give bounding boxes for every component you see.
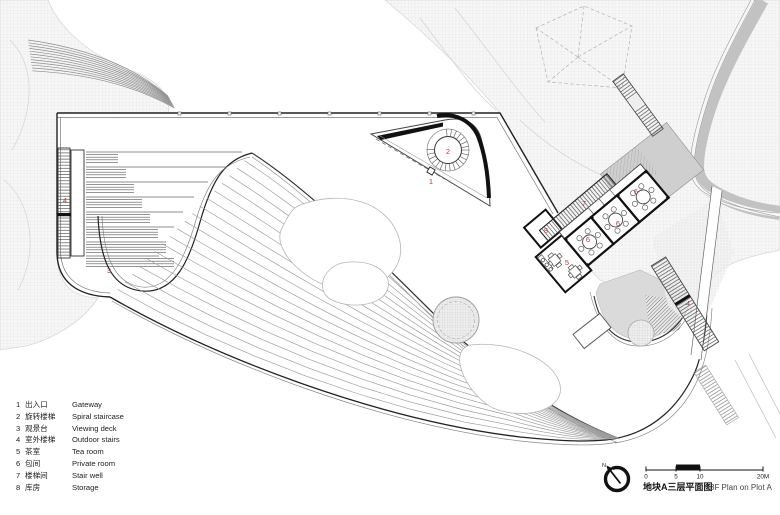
legend-item-number: 6 [16,458,25,470]
legend-item-zh: 库房 [25,482,72,494]
legend-item: 6包间Private room [16,458,124,470]
legend-item: 3观景台Viewing deck [16,423,124,435]
legend-item: 5茶室Tea room [16,446,124,458]
plan-label: 6 [616,219,620,228]
scale-tick: 20M [757,474,769,481]
legend-item-zh: 楼梯间 [25,470,72,482]
legend-item-zh: 旋转楼梯 [25,411,72,423]
scale-tick-labels: 051020M [644,474,769,481]
legend-item-number: 2 [16,411,25,423]
titleblock: N 051020M 地块A三层平面图 3F Plan on Plot A [602,463,772,492]
legend-item-en: Private room [72,458,115,470]
plan-label: 6 [586,235,590,244]
legend-item-zh: 出入口 [25,399,72,411]
legend-item-number: 8 [16,482,25,494]
legend-item: 2旋转楼梯Spiral staircase [16,411,124,423]
legend-item-en: Gateway [72,399,102,411]
legend-item-zh: 茶室 [25,446,72,458]
plan-label: 4 [63,196,67,205]
scale-tick: 0 [644,474,648,481]
plan-label: 4 [686,299,690,308]
floor-plan-sheet: 43127866654 N 051020M 地块A三层平面图 3F Plan o… [0,0,780,515]
plan-label: 8 [544,226,548,235]
scale-tick: 10 [696,474,704,481]
legend-item: 1出入口Gateway [16,399,124,411]
plan-label: 6 [634,187,638,196]
sheet-title-zh: 地块A三层平面图 [643,481,713,492]
legend-item-zh: 包间 [25,458,72,470]
tree-small [628,320,654,346]
tree [433,297,479,343]
scale-tick: 5 [674,474,678,481]
legend-item-number: 5 [16,446,25,458]
legend-item-number: 7 [16,470,25,482]
legend-item-en: Tea room [72,446,104,458]
legend-item-number: 4 [16,434,25,446]
legend-item-en: Viewing deck [72,423,117,435]
legend-item-number: 3 [16,423,25,435]
legend-item: 8库房Storage [16,482,124,494]
plan-label: 2 [446,147,450,156]
plan-label: 5 [565,258,569,267]
legend-item-en: Spiral staircase [72,411,124,423]
plan-label: 7 [582,199,586,208]
legend-item-en: Storage [72,482,99,494]
plan-label: 1 [429,177,433,186]
outdoor-stair-right-lower [694,365,739,425]
legend-item: 4室外楼梯Outdoor stairs [16,434,124,446]
north-label: N [602,463,606,469]
legend-item-zh: 室外楼梯 [25,434,72,446]
north-arrow-icon: N [602,463,629,491]
legend: 1出入口Gateway2旋转楼梯Spiral staircase3观景台View… [16,399,124,493]
sheet-title-en: 3F Plan on Plot A [710,483,772,492]
legend-item-en: Stair well [72,470,103,482]
legend-item-number: 1 [16,399,25,411]
plan-label: 3 [107,266,111,275]
legend-item-zh: 观景台 [25,423,72,435]
legend-item: 7楼梯间Stair well [16,470,124,482]
legend-item-en: Outdoor stairs [72,434,120,446]
scale-bar: 051020M [644,465,769,481]
